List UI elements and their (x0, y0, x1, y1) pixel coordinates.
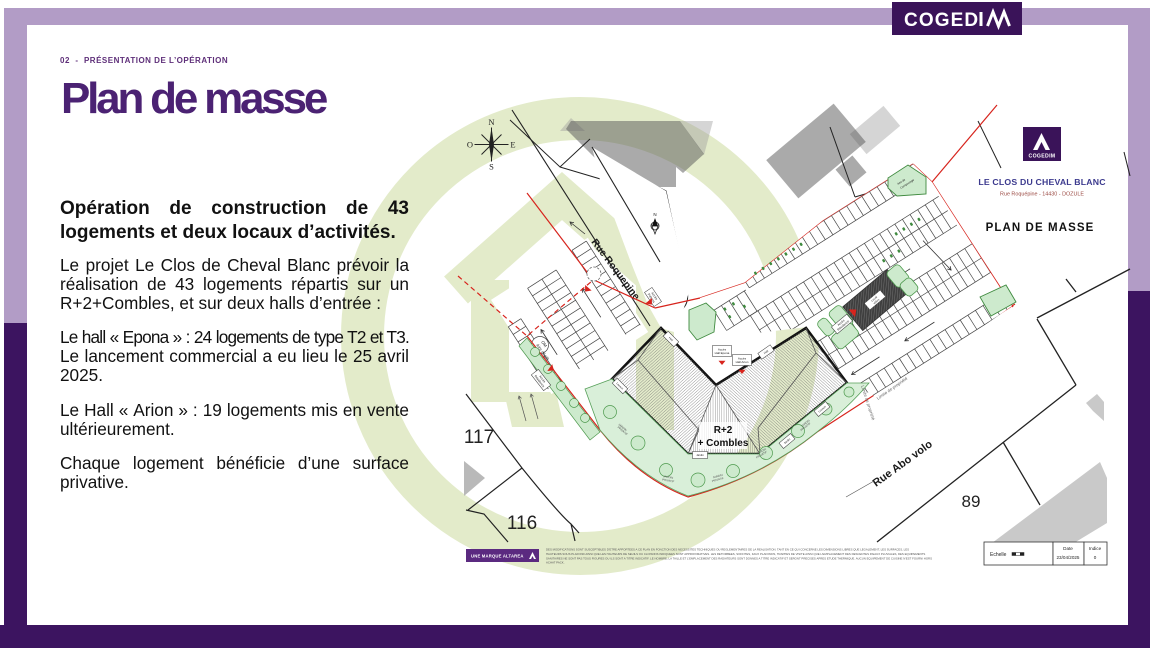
svg-text:0: 0 (1094, 555, 1097, 560)
svg-text:Hall Arion: Hall Arion (736, 360, 749, 364)
svg-text:23/04/2025: 23/04/2025 (1057, 555, 1080, 560)
svg-text:COGED: COGED (904, 10, 979, 31)
svg-text:LE CLOS DU CHEVAL BLANC: LE CLOS DU CHEVAL BLANC (978, 177, 1106, 187)
svg-text:PLAN DE MASSE: PLAN DE MASSE (986, 222, 1095, 234)
svg-text:R+2: R+2 (714, 425, 733, 436)
svg-text:117: 117 (464, 427, 494, 448)
svg-text:89: 89 (962, 492, 981, 511)
svg-text:S: S (489, 162, 494, 172)
svg-text:Indice: Indice (1089, 546, 1102, 551)
svg-text:N: N (488, 117, 494, 127)
svg-text:Rue Abo volo: Rue Abo volo (871, 438, 935, 489)
svg-text:N: N (653, 212, 656, 217)
svg-text:Rue Roquépine - 14430 - DOZULE: Rue Roquépine - 14430 - DOZULE (1000, 192, 1084, 198)
svg-text:116: 116 (507, 513, 537, 534)
svg-text:SANITAIRES NE SONT PAS TOUS FI: SANITAIRES NE SONT PAS TOUS FIGURES OU I… (546, 556, 932, 560)
svg-text:UNE MARQUE ALTAREA: UNE MARQUE ALTAREA (471, 554, 524, 559)
svg-text:E: E (510, 140, 515, 150)
svg-text:+ Combles: + Combles (698, 438, 749, 449)
svg-text:Date: Date (1063, 546, 1073, 551)
svg-text:DES MODIFICATIONS SONT SUSCEPT: DES MODIFICATIONS SONT SUSCEPTIBLES D'ET… (546, 548, 909, 552)
svg-text:O: O (467, 140, 473, 150)
svg-text:Echelle: Echelle (990, 552, 1007, 558)
svg-text:ACHAT PACK.: ACHAT PACK. (546, 561, 565, 565)
svg-text:Hall Epona: Hall Epona (715, 351, 730, 355)
svg-text:COGEDIM: COGEDIM (1029, 154, 1056, 160)
svg-text:HAUTEURS SOUS PLAFOND AINSI QU: HAUTEURS SOUS PLAFOND AINSI QUE LES HAUT… (546, 552, 925, 556)
svg-text:Jardin: Jardin (696, 453, 704, 457)
